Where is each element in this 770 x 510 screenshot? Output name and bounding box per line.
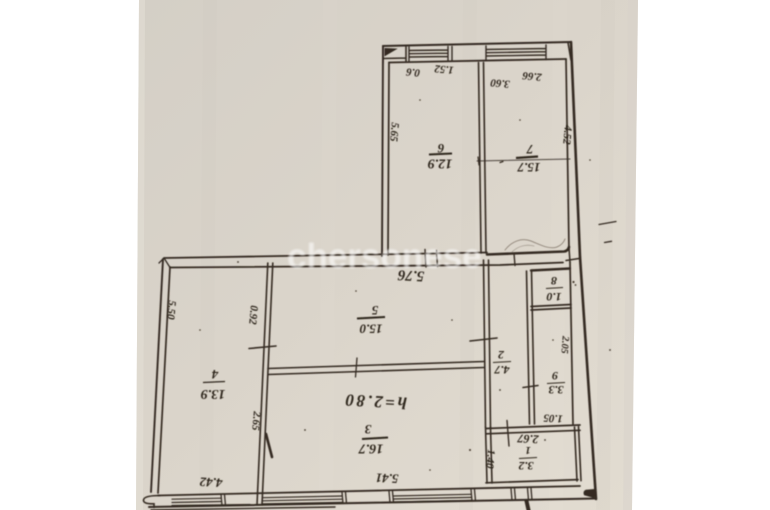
svg-text:chersonese: chersonese: [287, 237, 482, 276]
svg-text:4.7: 4.7: [494, 363, 511, 377]
svg-text:2.66: 2.66: [521, 69, 543, 83]
svg-text:1.52: 1.52: [433, 62, 454, 76]
svg-text:15.0: 15.0: [359, 322, 382, 337]
svg-text:5.65: 5.65: [387, 122, 401, 143]
svg-text:9: 9: [552, 369, 558, 383]
svg-text:2.05: 2.05: [558, 335, 571, 354]
svg-text:8: 8: [551, 274, 557, 288]
svg-text:3.2: 3.2: [519, 459, 535, 473]
svg-text:4.42: 4.42: [199, 474, 224, 490]
svg-text:12.9: 12.9: [428, 156, 453, 171]
svg-text:13.9: 13.9: [201, 386, 226, 401]
svg-text:3.3: 3.3: [549, 383, 565, 397]
svg-text:h=2.80: h=2.80: [343, 390, 408, 412]
svg-text:1.40: 1.40: [483, 449, 497, 470]
svg-text:1.05: 1.05: [543, 411, 563, 424]
svg-text:0.6: 0.6: [405, 65, 420, 78]
svg-text:5.41: 5.41: [375, 470, 399, 486]
svg-text:4: 4: [211, 367, 219, 382]
svg-text:5: 5: [371, 303, 378, 318]
svg-text:15.7: 15.7: [517, 160, 540, 175]
svg-text:4.52: 4.52: [560, 124, 574, 146]
svg-text:5.50: 5.50: [164, 300, 178, 321]
svg-text:2.65: 2.65: [249, 410, 263, 432]
svg-text:1: 1: [525, 444, 531, 456]
svg-text:2: 2: [498, 348, 505, 362]
svg-text:1.0: 1.0: [547, 290, 562, 304]
svg-text:3: 3: [364, 422, 372, 437]
svg-text:3.60: 3.60: [489, 76, 511, 90]
svg-text:0.92: 0.92: [246, 305, 260, 326]
svg-text:7: 7: [526, 142, 533, 157]
svg-text:16.7: 16.7: [358, 441, 384, 456]
